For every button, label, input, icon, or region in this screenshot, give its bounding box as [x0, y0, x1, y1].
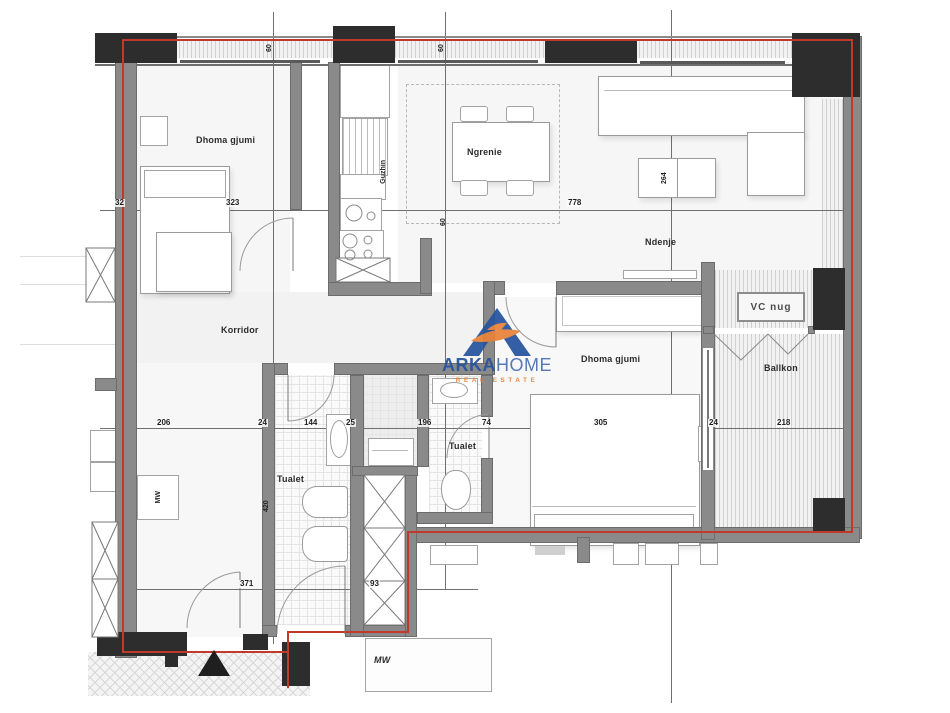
neighbour-item [700, 543, 718, 565]
dim-60-top-b: 60 [438, 44, 445, 52]
neighbour-item [535, 546, 565, 555]
neighbour-line [20, 284, 115, 285]
dining-chair [506, 180, 534, 196]
dim-196: 196 [417, 419, 432, 427]
window-sill [398, 60, 538, 63]
dimension-line-middle [100, 428, 857, 429]
neighbour-line [20, 256, 115, 257]
wc-label: VC nug [751, 302, 792, 313]
dim-24b: 24 [708, 419, 719, 427]
dim-74: 74 [481, 419, 492, 427]
room-label-toilet-left: Tualet [277, 474, 304, 484]
dim-305: 305 [593, 419, 608, 427]
boundary-bottom-left [123, 651, 289, 653]
brand-name-bold: ARKA [442, 355, 496, 375]
coffee-table-b [677, 158, 716, 198]
neighbour-item [613, 543, 639, 565]
boundary-bottom-right [408, 531, 853, 533]
boundary-left [122, 39, 124, 653]
room-label-bedroom-right: Dhoma gjumi [581, 354, 640, 364]
fridge [340, 64, 390, 118]
wall-stub-below [577, 537, 590, 563]
dim-32: 32 [114, 199, 125, 207]
dim-323: 323 [225, 199, 240, 207]
room-label-balcony: Ballkon [764, 363, 798, 373]
floorplan-canvas: MW [0, 0, 950, 713]
window-sill [180, 60, 320, 63]
pillow-bedroom1 [144, 170, 226, 198]
wall-stub-left-out [95, 378, 117, 391]
dining-chair [460, 106, 488, 122]
kitchen-stove [338, 230, 384, 264]
column [545, 40, 637, 63]
wall-bedroom1-right [290, 62, 302, 210]
room-label-corridor: Korridor [221, 325, 259, 335]
toilet-fixture-right [441, 470, 471, 510]
washing-machine-left: MW [137, 475, 179, 520]
neighbour-counter [430, 545, 478, 565]
desk-bedroom1 [156, 232, 232, 292]
bidet-fixture [302, 526, 348, 562]
wall-bottom-right [408, 527, 860, 543]
dimension-line-bottom [100, 589, 478, 590]
nightstand-bedroom1 [140, 116, 168, 146]
washing-machine-bottom-box [365, 638, 492, 692]
boundary-top [123, 39, 853, 41]
washing-machine-bottom-label: MW [374, 655, 390, 665]
neighbour-item [645, 543, 679, 565]
dim-206: 206 [156, 419, 171, 427]
shaft-box-left [90, 462, 118, 492]
wall-stub-kitchen [420, 238, 432, 294]
shaft-box-left [90, 430, 118, 462]
kitchen-sink-unit [340, 198, 382, 232]
wall-kitchen-left [328, 62, 340, 294]
wc-label-box: VC nug [737, 292, 805, 322]
brand-name-light: HOME [496, 355, 552, 375]
room-label-toilet-right: Tualet [449, 441, 476, 451]
column [95, 33, 177, 63]
washing-machine-left-label: MW [155, 491, 162, 503]
dim-144: 144 [303, 419, 318, 427]
dim-60-top-a: 60 [266, 44, 273, 52]
window-strip-right [822, 99, 843, 269]
wall-toilet-right-bottom [417, 512, 493, 524]
brand-name: ARKAHOME [416, 356, 578, 376]
dining-chair [506, 106, 534, 122]
tv-console [623, 270, 697, 279]
room-label-living: Ndenje [645, 237, 676, 247]
brand-logo-icon [457, 308, 537, 356]
brand-watermark: ARKAHOME REAL ESTATE [416, 308, 578, 392]
coffee-table-a [638, 158, 678, 198]
boundary-entry-edge [287, 631, 289, 688]
toilet-fixture [302, 486, 348, 518]
neighbour-line [20, 344, 115, 345]
dim-93: 93 [369, 580, 380, 588]
wall-shower-bottom [352, 466, 418, 476]
column [243, 634, 268, 650]
boundary-bath-bottom [287, 631, 409, 633]
dim-24a: 24 [257, 419, 268, 427]
wall-bedroom2-top-b [556, 281, 715, 295]
room-label-dining: Ngrenie [467, 147, 502, 157]
sofa-back-line [604, 90, 798, 91]
bed2-mattress-line [532, 506, 696, 507]
column [813, 268, 845, 330]
dim-371: 371 [239, 580, 254, 588]
wall-wc-bottom-a [703, 326, 714, 334]
dim-25: 25 [345, 419, 356, 427]
dim-218: 218 [776, 419, 791, 427]
dim-264: 264 [661, 172, 668, 184]
wall-bath-mid1 [350, 375, 364, 637]
wall-left [115, 36, 137, 658]
shower-tray [368, 438, 414, 466]
column [813, 498, 845, 532]
dim-420: 420 [263, 500, 270, 512]
boundary-shaft-edge [407, 531, 409, 633]
column [165, 654, 178, 667]
brand-tagline: REAL ESTATE [416, 377, 578, 384]
window-balcony-glass [707, 350, 709, 468]
stairwell-crosshatch [88, 652, 310, 696]
wall-kitchen-bottom [328, 282, 432, 296]
sofa-chaise [747, 132, 805, 196]
column [792, 33, 860, 97]
window-sill [640, 61, 785, 64]
shower-tray-line [372, 450, 408, 451]
room-label-bedroom-top-left: Dhoma gjumi [196, 135, 255, 145]
room-label-kitchen: Guzhin [380, 160, 387, 184]
boundary-right [851, 39, 853, 533]
wardrobe-inner [562, 296, 704, 326]
sofa-main [598, 76, 805, 136]
dim-60-mid: 60 [440, 218, 447, 226]
dim-778: 778 [567, 199, 582, 207]
dining-chair [460, 180, 488, 196]
column [333, 26, 395, 63]
